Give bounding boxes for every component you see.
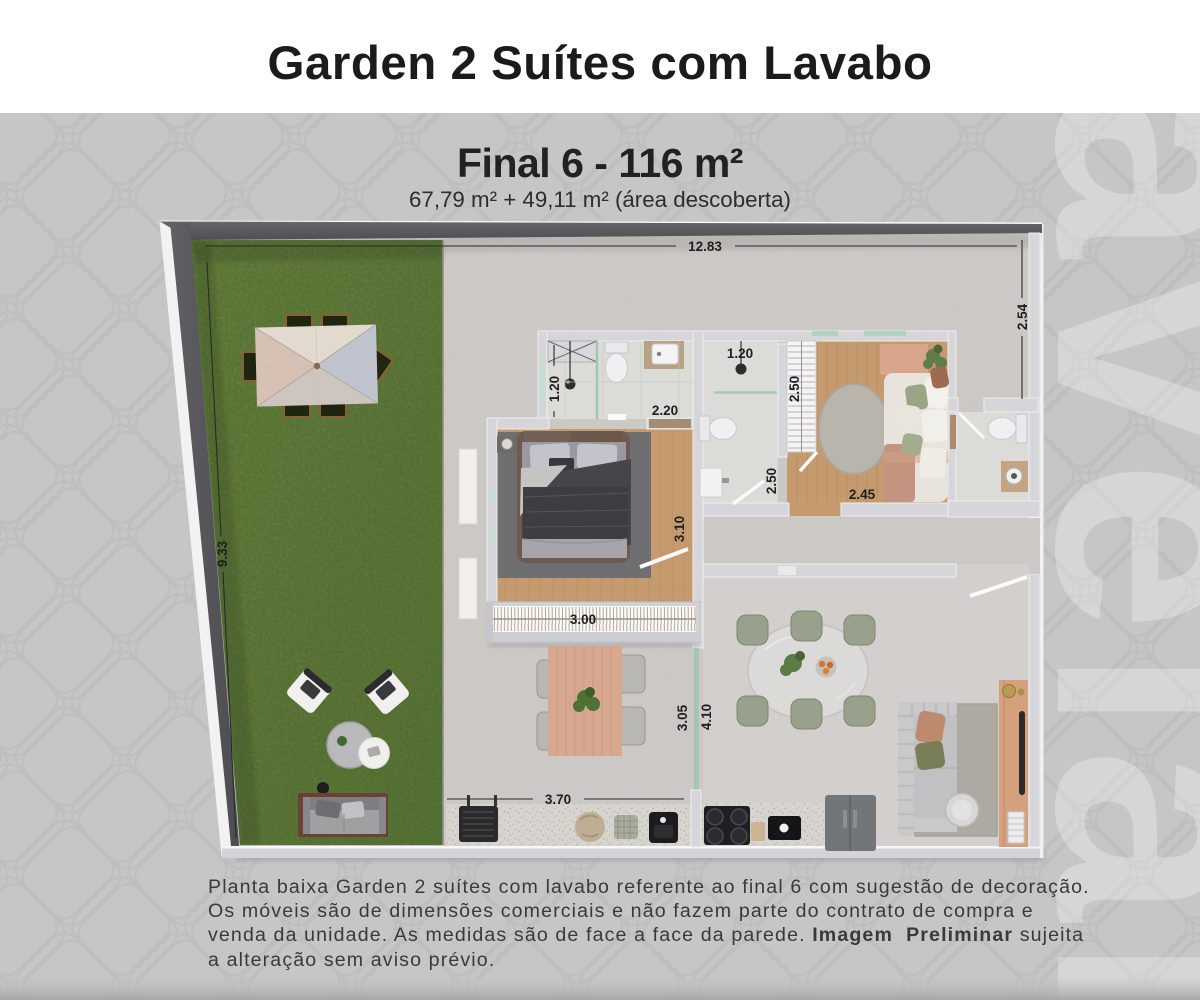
svg-text:3.70: 3.70 — [545, 792, 571, 807]
svg-text:1.20: 1.20 — [547, 376, 562, 402]
svg-text:2.50: 2.50 — [764, 468, 779, 494]
svg-text:2.20: 2.20 — [652, 403, 678, 418]
svg-text:4.10: 4.10 — [699, 704, 714, 730]
svg-text:9.33: 9.33 — [215, 540, 230, 567]
svg-text:1.20: 1.20 — [727, 346, 753, 361]
svg-text:3.00: 3.00 — [570, 612, 596, 627]
svg-text:3.05: 3.05 — [675, 704, 690, 731]
svg-text:3.10: 3.10 — [672, 516, 687, 542]
svg-text:2.54: 2.54 — [1015, 303, 1030, 330]
svg-text:12.83: 12.83 — [688, 239, 722, 254]
svg-text:2.45: 2.45 — [849, 487, 876, 502]
svg-text:2.50: 2.50 — [787, 376, 802, 402]
